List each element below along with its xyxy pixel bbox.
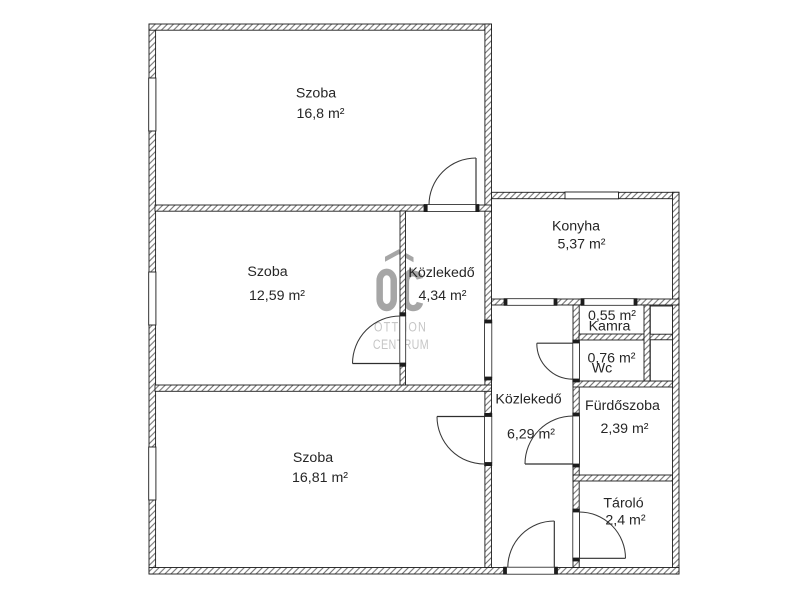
svg-text:5,37 m²: 5,37 m²: [557, 237, 605, 253]
svg-text:Fürdőszoba: Fürdőszoba: [585, 398, 660, 414]
svg-text:4,34 m²: 4,34 m²: [418, 288, 466, 304]
svg-text:Közlekedő: Közlekedő: [495, 392, 561, 408]
svg-text:Konyha: Konyha: [552, 219, 600, 235]
svg-text:Kamra: Kamra: [589, 319, 631, 335]
svg-text:6,29 m²: 6,29 m²: [507, 427, 555, 443]
svg-text:Szoba: Szoba: [296, 86, 336, 102]
svg-text:Tároló: Tároló: [603, 496, 643, 512]
svg-text:16,8 m²: 16,8 m²: [296, 106, 344, 122]
svg-text:Szoba: Szoba: [247, 264, 287, 280]
svg-text:Wc: Wc: [592, 361, 613, 377]
svg-text:2,39 m²: 2,39 m²: [600, 421, 648, 437]
svg-text:2,4 m²: 2,4 m²: [605, 513, 645, 529]
svg-text:Szoba: Szoba: [293, 450, 333, 466]
svg-text:16,81 m²: 16,81 m²: [292, 470, 348, 486]
svg-text:Közlekedő: Közlekedő: [408, 265, 474, 281]
svg-text:12,59 m²: 12,59 m²: [249, 288, 305, 304]
